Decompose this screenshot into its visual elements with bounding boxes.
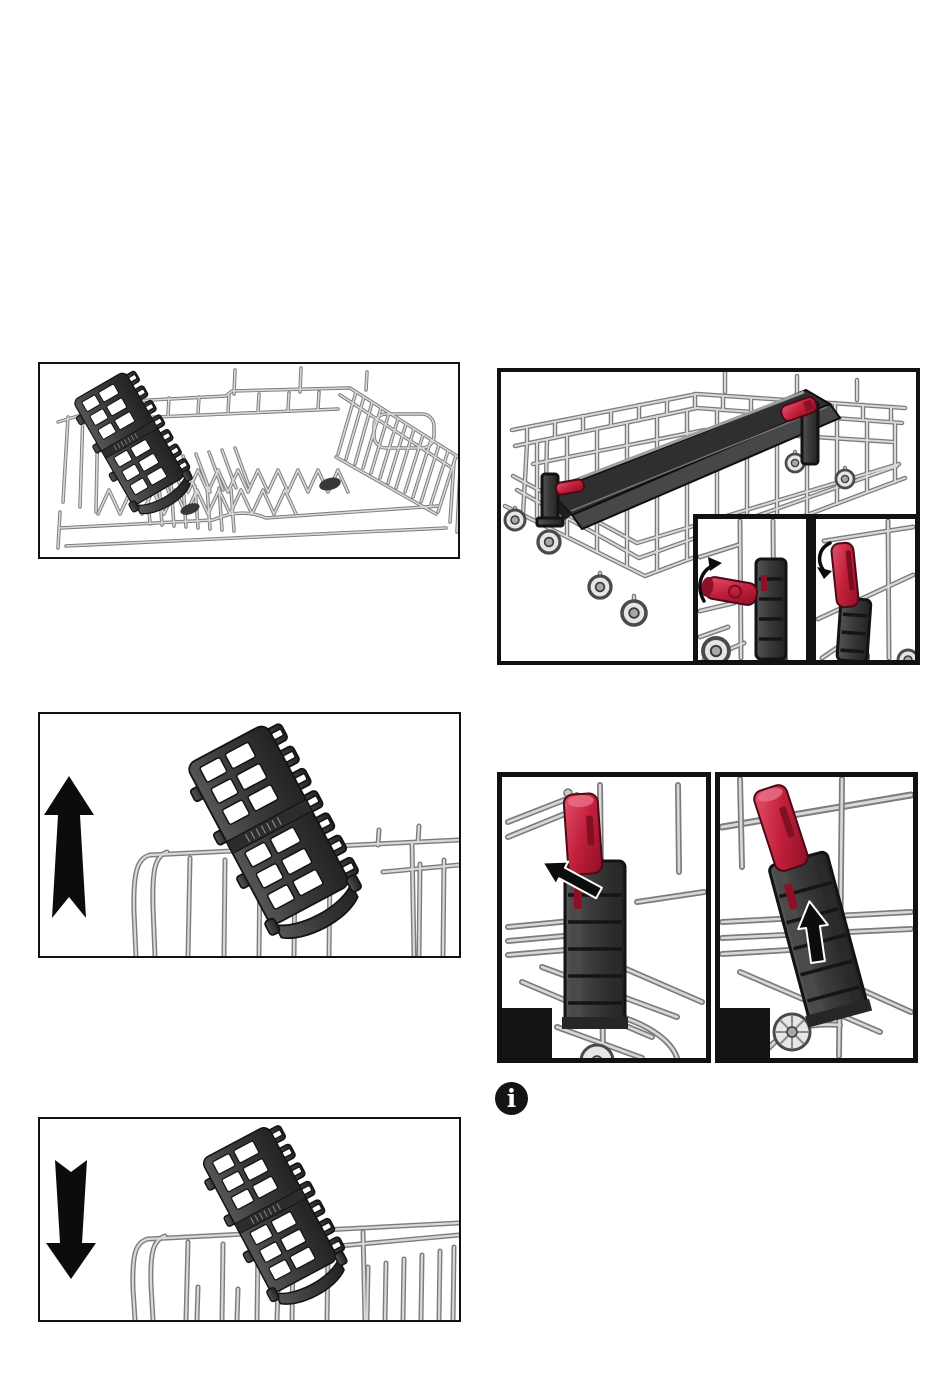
inset-lever-locked (811, 514, 920, 665)
step-label-box (502, 1008, 552, 1058)
inset-lever-unlocked (693, 514, 811, 665)
red-lever-folded (700, 575, 759, 606)
insertion-illustration (38, 1117, 461, 1322)
figure-knife-shelf-removal (38, 712, 461, 958)
info-icon: i (495, 1082, 528, 1115)
figure-lever-steps (497, 772, 918, 1063)
top-basket-illustration (38, 362, 460, 559)
step-lift-bracket (715, 772, 918, 1063)
left-mounting-bracket (537, 474, 563, 526)
mounting-bracket (756, 559, 786, 659)
step-pull-lever (497, 772, 711, 1063)
removal-illustration (38, 712, 461, 958)
wheel (774, 1014, 810, 1050)
red-lever-upright (831, 542, 860, 608)
inset-right-illustration (816, 519, 915, 660)
red-lever (752, 783, 810, 873)
lever-detail-inset (693, 514, 920, 665)
manual-page: i (0, 0, 950, 1374)
knife-shelf (178, 717, 374, 953)
info-icon-glyph: i (507, 1086, 517, 1111)
figure-tray-in-basket-with-levers (497, 368, 920, 665)
figure-knife-shelf-insertion (38, 1117, 461, 1322)
step-label-box (720, 1008, 770, 1058)
down-arrow-icon (46, 1160, 96, 1279)
knife-shelf (195, 1120, 359, 1317)
rotate-down-arrow-icon (817, 543, 832, 579)
up-arrow-icon (44, 776, 94, 918)
inset-left-illustration (698, 519, 806, 660)
figure-knife-shelf-on-top-basket (38, 362, 460, 559)
red-lever (563, 793, 602, 875)
